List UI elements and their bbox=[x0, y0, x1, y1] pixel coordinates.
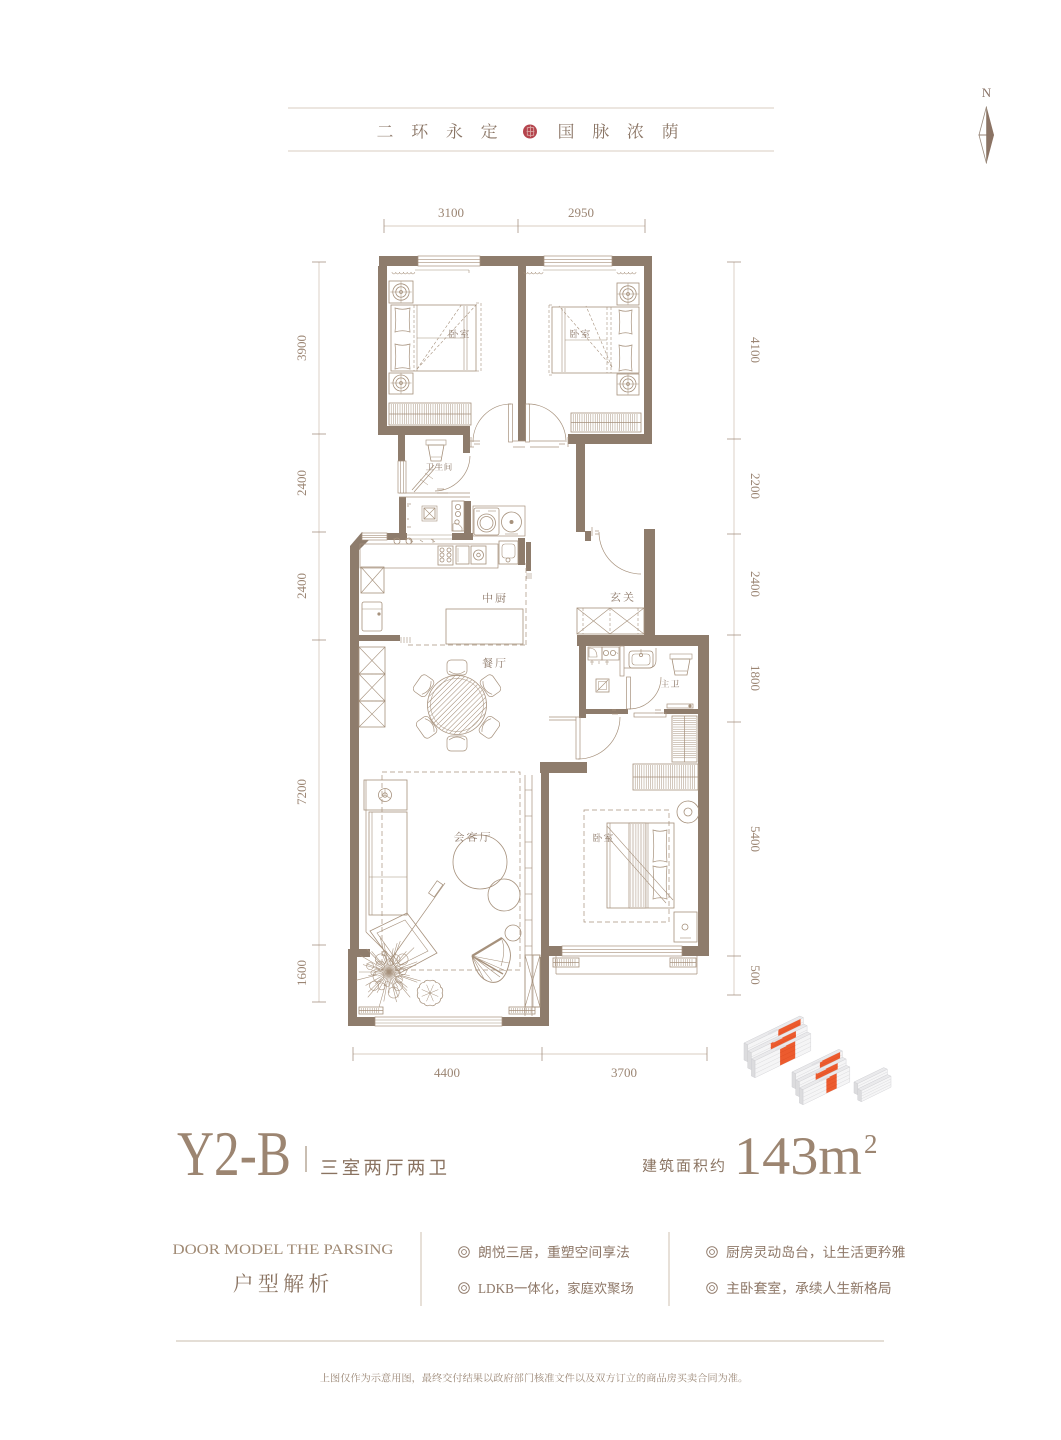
svg-text:3700: 3700 bbox=[611, 1065, 637, 1080]
svg-text:2: 2 bbox=[864, 1129, 878, 1159]
svg-text:7200: 7200 bbox=[294, 779, 309, 805]
svg-text:2200: 2200 bbox=[748, 473, 763, 499]
svg-text:4400: 4400 bbox=[434, 1065, 460, 1080]
svg-text:2400: 2400 bbox=[294, 470, 309, 496]
svg-text:N: N bbox=[982, 85, 992, 100]
svg-text:LDKB: LDKB bbox=[478, 1281, 514, 1296]
svg-text:143m: 143m bbox=[734, 1126, 862, 1186]
svg-text:2950: 2950 bbox=[568, 205, 594, 220]
svg-text:5400: 5400 bbox=[748, 826, 763, 852]
svg-text:500: 500 bbox=[748, 965, 763, 985]
svg-text:DOOR MODEL THE PARSING: DOOR MODEL THE PARSING bbox=[173, 1242, 394, 1258]
svg-text:1600: 1600 bbox=[294, 960, 309, 986]
svg-text:1800: 1800 bbox=[748, 665, 763, 691]
svg-text:3900: 3900 bbox=[294, 335, 309, 361]
svg-text:Y2-B: Y2-B bbox=[177, 1119, 291, 1189]
svg-text:2400: 2400 bbox=[294, 573, 309, 599]
svg-text:3100: 3100 bbox=[438, 205, 464, 220]
svg-text:2400: 2400 bbox=[748, 571, 763, 597]
svg-text:4100: 4100 bbox=[748, 337, 763, 363]
